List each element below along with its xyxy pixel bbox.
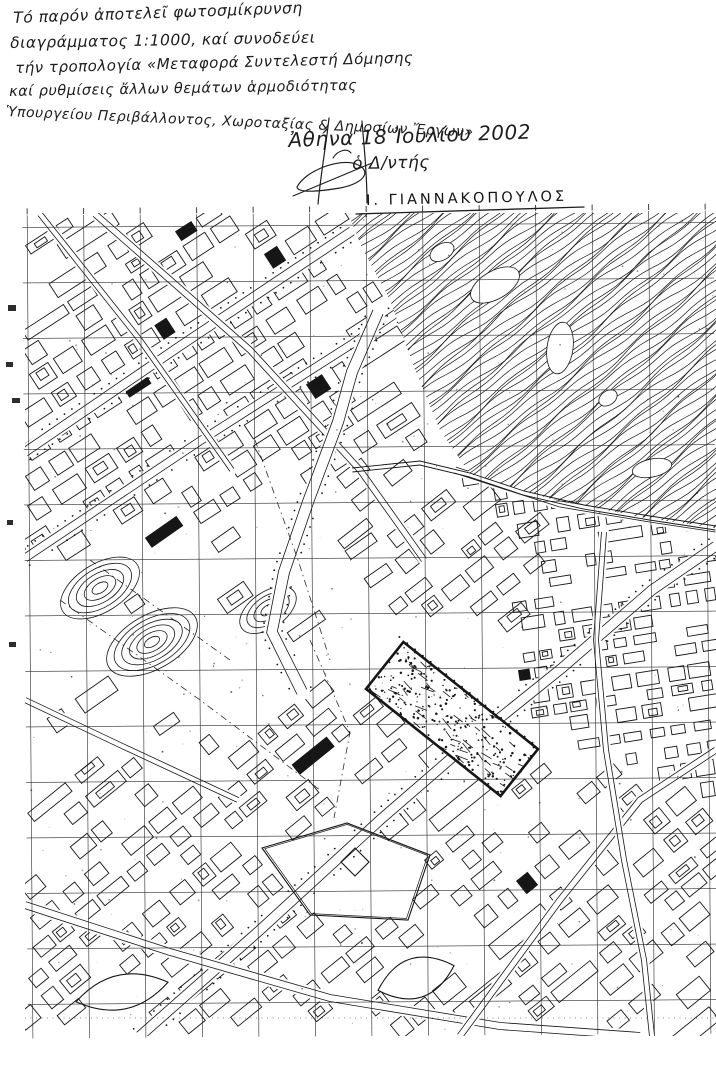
signer-title: ὁ Δ/ντής bbox=[352, 153, 430, 174]
scanned-map-document: Τό παρόν ἀποτελεῖ φωτοσμίκρυνση διαγράμμ… bbox=[0, 0, 716, 1066]
